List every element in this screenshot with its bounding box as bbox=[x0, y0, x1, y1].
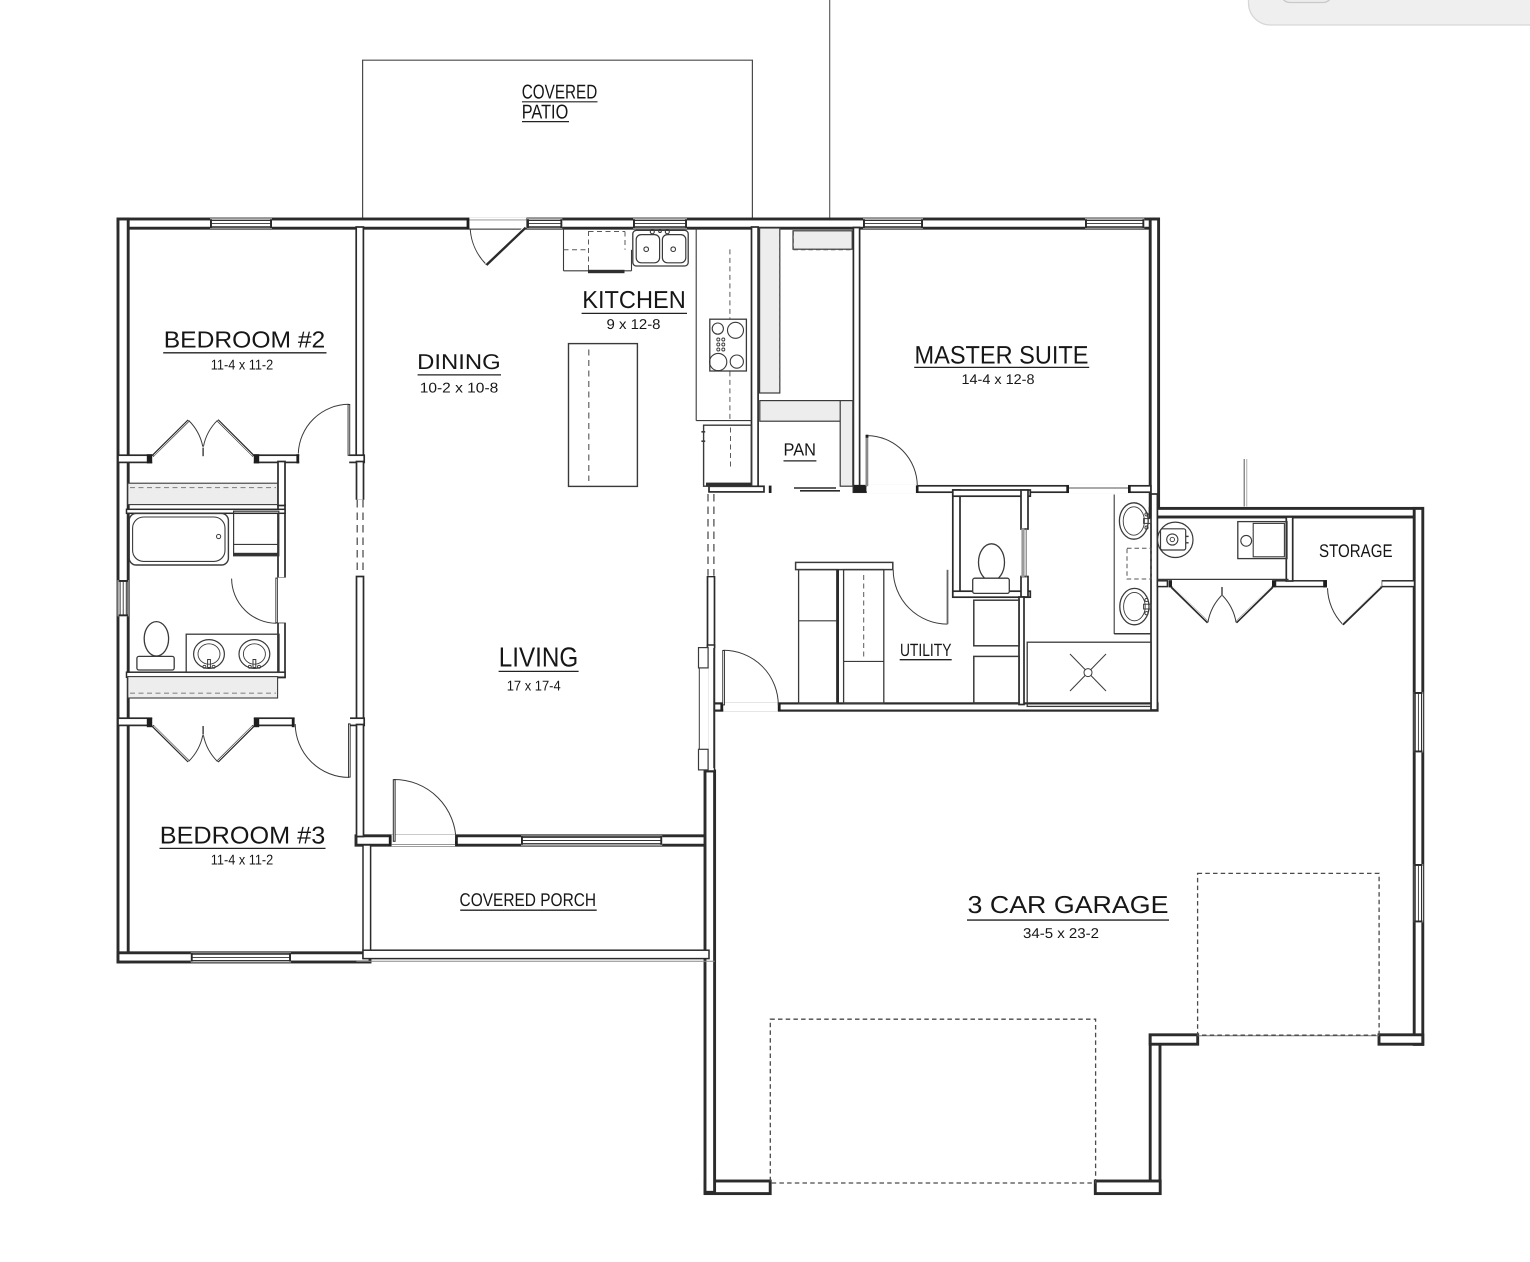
svg-text:PAN: PAN bbox=[784, 439, 816, 459]
svg-text:34-5 x 23-2: 34-5 x 23-2 bbox=[1023, 926, 1099, 942]
svg-text:BEDROOM #2: BEDROOM #2 bbox=[164, 326, 326, 352]
svg-text:KITCHEN: KITCHEN bbox=[582, 287, 686, 314]
svg-text:STORAGE: STORAGE bbox=[1319, 540, 1393, 561]
svg-text:PATIO: PATIO bbox=[522, 101, 569, 123]
svg-text:11-4 x 11-2: 11-4 x 11-2 bbox=[211, 358, 274, 374]
svg-text:DINING: DINING bbox=[417, 350, 501, 374]
svg-text:17 x 17-4: 17 x 17-4 bbox=[507, 678, 561, 694]
svg-text:COVERED PORCH: COVERED PORCH bbox=[460, 889, 597, 910]
svg-text:MASTER SUITE: MASTER SUITE bbox=[915, 341, 1089, 369]
svg-text:BEDROOM #3: BEDROOM #3 bbox=[160, 823, 326, 850]
svg-text:10-2 x 10-8: 10-2 x 10-8 bbox=[420, 381, 499, 397]
svg-text:LIVING: LIVING bbox=[499, 642, 579, 673]
svg-text:COVERED: COVERED bbox=[522, 81, 598, 103]
svg-text:UTILITY: UTILITY bbox=[900, 640, 952, 660]
svg-text:11-4 x 11-2: 11-4 x 11-2 bbox=[211, 853, 274, 869]
svg-text:14-4 x 12-8: 14-4 x 12-8 bbox=[962, 371, 1035, 387]
svg-text:3 CAR GARAGE: 3 CAR GARAGE bbox=[968, 892, 1169, 919]
svg-text:9 x 12-8: 9 x 12-8 bbox=[607, 317, 661, 333]
